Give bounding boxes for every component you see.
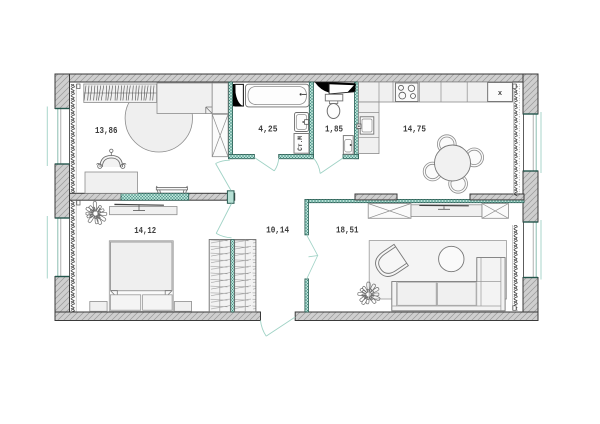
svg-text:Ст.М: Ст.М bbox=[297, 136, 304, 151]
svg-text:14,75: 14,75 bbox=[403, 123, 426, 134]
svg-text:18,51: 18,51 bbox=[336, 225, 359, 236]
svg-text:13,86: 13,86 bbox=[95, 125, 118, 136]
svg-text:10,14: 10,14 bbox=[266, 225, 289, 236]
svg-text:14,12: 14,12 bbox=[134, 225, 156, 236]
svg-text:4,25: 4,25 bbox=[258, 123, 278, 134]
svg-text:1,85: 1,85 bbox=[325, 123, 343, 134]
